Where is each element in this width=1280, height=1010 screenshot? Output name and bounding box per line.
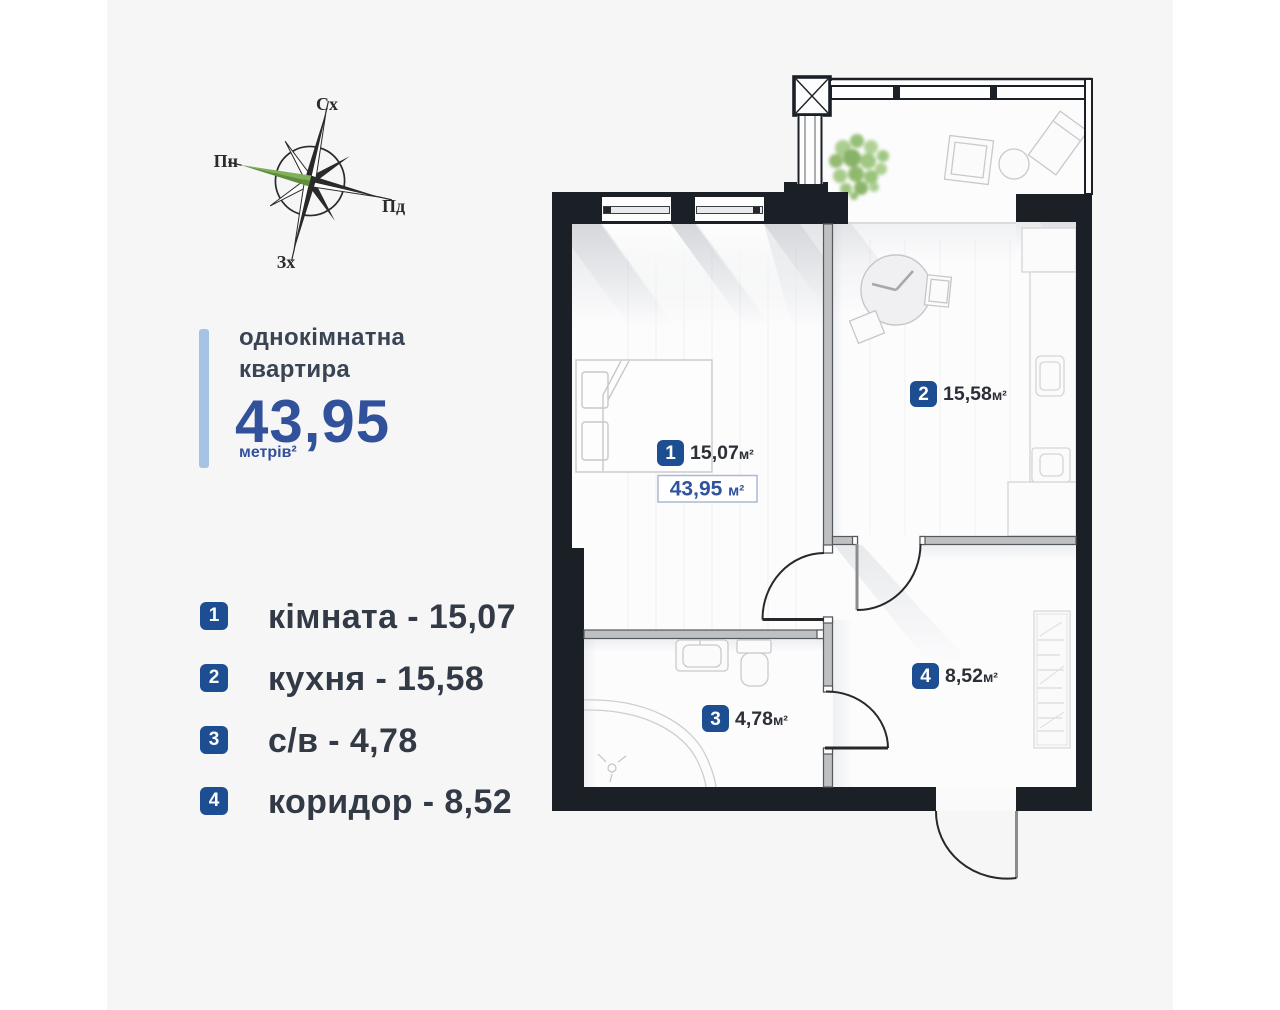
svg-text:15,58м²: 15,58м² [943,383,1007,405]
svg-text:8,52м²: 8,52м² [945,665,998,687]
svg-text:Пн: Пн [214,151,238,171]
svg-text:Сх: Сх [316,94,338,114]
svg-text:4: 4 [920,666,931,687]
svg-text:3: 3 [710,709,721,730]
svg-text:Зх: Зх [277,252,296,272]
svg-text:Пд: Пд [382,196,405,216]
svg-text:15,07м²: 15,07м² [690,442,754,464]
svg-text:4,78м²: 4,78м² [735,708,788,730]
svg-text:1: 1 [665,443,676,464]
svg-text:2: 2 [918,384,929,405]
